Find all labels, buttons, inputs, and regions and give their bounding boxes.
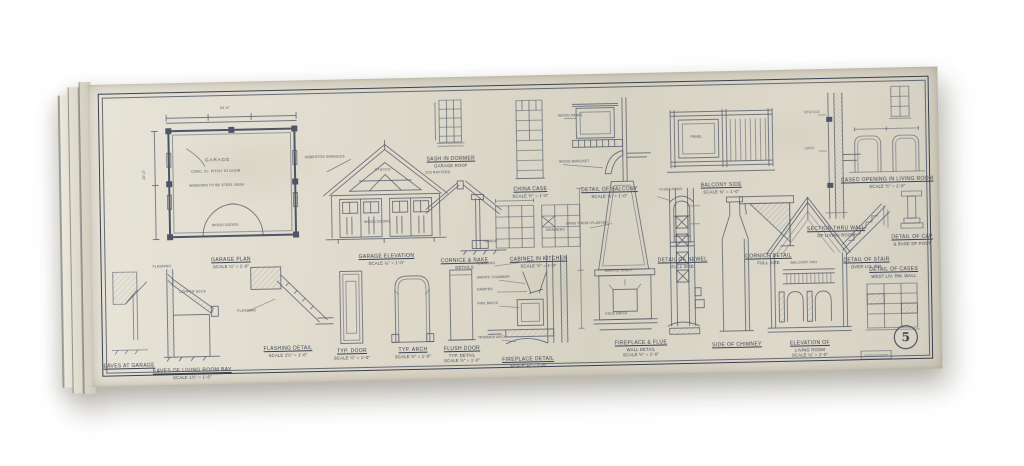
annotation-label: LATH bbox=[805, 147, 814, 151]
annotation-label: STUCCO bbox=[375, 168, 391, 172]
figure-caption: DETAIL OF CAP & BASE OF POST bbox=[891, 234, 933, 247]
cap-base-drawing bbox=[897, 187, 926, 234]
fireplace-flue-drawing bbox=[571, 176, 708, 341]
annotation-label: WOOD PANEL bbox=[558, 114, 583, 118]
annotation-label: MANTEL SHELF bbox=[605, 269, 633, 273]
typ-arch-drawing bbox=[387, 263, 438, 346]
china-case-drawing bbox=[510, 97, 549, 186]
annotation-label: DAMPER bbox=[477, 288, 493, 292]
annotation-label: COPPER DECK bbox=[179, 290, 206, 294]
figure-garage-plan: GARAGE CONC. FL. PITCH TO DOOR WINDOWS T… bbox=[146, 108, 313, 258]
figure-cased-opening: CASED OPENING IN LIVING ROOM SCALE ½" = … bbox=[844, 125, 929, 177]
figure-title: SASH IN DORMER bbox=[427, 156, 476, 164]
annotation-label: WOOD DOORS bbox=[212, 224, 239, 228]
figure-title: FIREPLACE & FLUE bbox=[615, 339, 667, 347]
annotation-label: FLASHING bbox=[237, 309, 256, 313]
figure-scale: SCALE ¾" = 1'-0" bbox=[502, 362, 554, 369]
balcony-side-drawing bbox=[664, 100, 777, 182]
figure-caption: TYP. DOOR SCALE ½" = 1'-0" bbox=[334, 348, 370, 361]
typ-door-drawing bbox=[335, 267, 368, 348]
figure-subtitle: WEST LIV. RM. WALL bbox=[869, 272, 918, 279]
figure-scale: SCALE ¼" = 1'-0" bbox=[790, 352, 830, 358]
annotation-label: 2x6 RAFTERS bbox=[425, 171, 450, 175]
blueprint-stack: GARAGE CONC. FL. PITCH TO DOOR WINDOWS T… bbox=[55, 60, 948, 397]
figure-typ-door: TYP. DOOR SCALE ½" = 1'-0" bbox=[335, 267, 368, 348]
figure-china-case: CHINA CASE SCALE ½" = 1'-0" bbox=[510, 97, 549, 186]
figure-chimney-side: SIDE OF CHIMNEY bbox=[711, 194, 759, 341]
figure-caption: FIREPLACE DETAIL SCALE ¾" = 1'-0" bbox=[502, 356, 554, 369]
figure-caption: DETAIL OF CASES WEST LIV. RM. WALL bbox=[869, 266, 918, 279]
figure-title: GARAGE ELEVATION bbox=[359, 253, 415, 261]
figure-flush-door: FLUSH DOOR TYP. DETAIL SCALE ½" = 1'-0" bbox=[445, 265, 478, 346]
figure-caption: FLUSH DOOR TYP. DETAIL SCALE ½" = 1'-0" bbox=[444, 346, 481, 364]
figure-caption: ELEVATION OF LIVING ROOM SCALE ¼" = 1'-0… bbox=[790, 340, 830, 358]
annotation-label: SMOKE CHAMBER bbox=[477, 276, 510, 281]
blueprint-sheet: GARAGE CONC. FL. PITCH TO DOOR WINDOWS T… bbox=[88, 66, 943, 387]
figure-flashing-detail: FLASHING FLASHING DETAIL SCALE 1½" = 1'-… bbox=[237, 260, 338, 346]
annotation-label: DRAWERS bbox=[546, 229, 565, 233]
annotation-label: STUCCO bbox=[804, 111, 820, 115]
figure-small-sash bbox=[888, 83, 915, 124]
figure-fireplace-flue: SAND FINISH PLASTER MANTEL SHELF FACE BR… bbox=[571, 176, 708, 341]
figure-caption: EAVES OF LIVING ROOM BAY SCALE 1½" = 1'-… bbox=[153, 367, 232, 381]
figure-caption: SASH IN DORMER GARAGE ROOF bbox=[427, 156, 476, 169]
eaves-section-drawing bbox=[154, 260, 228, 368]
title-box-decoration bbox=[860, 350, 892, 361]
sheet-number: 5 bbox=[902, 330, 911, 344]
figure-title: SIDE OF CHIMNEY bbox=[712, 341, 762, 349]
annotation-label: FIRE BRICK bbox=[477, 302, 498, 306]
figure-title: DETAIL OF STAIR bbox=[843, 257, 889, 265]
dormer-sash-drawing bbox=[432, 97, 469, 156]
figure-title: EAVES AT GARAGE bbox=[103, 363, 154, 371]
figure-title: FIREPLACE DETAIL bbox=[502, 356, 554, 364]
sheet-number-badge: 5 bbox=[894, 325, 918, 350]
annotation-label: GARAGE bbox=[205, 158, 230, 164]
figure-balcony-detail: WOOD PANEL WOOD BRACKET DETAIL OF BALCON… bbox=[558, 93, 660, 187]
figure-scale: SCALE ½" = 1'-0" bbox=[395, 353, 431, 359]
cased-opening-drawing bbox=[844, 125, 929, 177]
dimension-label: 20'-0" bbox=[143, 170, 147, 180]
figure-caption: TYP. ARCH SCALE ½" = 1'-0" bbox=[395, 347, 431, 360]
bookcases-drawing bbox=[865, 279, 924, 332]
annotation-label: FLASHING bbox=[153, 265, 172, 269]
flashing-detail-drawing bbox=[237, 260, 338, 346]
figure-typ-arch: TYP. ARCH SCALE ½" = 1'-0" bbox=[387, 263, 438, 346]
figure-balcony-side: PANEL BALCONY SIDE SCALE ¾" = 1'-0" bbox=[664, 100, 777, 182]
annotation-label: FLASHING bbox=[477, 262, 496, 266]
small-sash-drawing bbox=[888, 83, 915, 124]
figure-dormer-sash: SASH IN DORMER GARAGE ROOF bbox=[432, 97, 469, 156]
figure-cap-base: DETAIL OF CAP & BASE OF POST bbox=[897, 187, 926, 234]
garage-eaves-drawing bbox=[105, 262, 153, 363]
dimension-label: 24'-6" bbox=[220, 107, 230, 111]
figure-caption: SIDE OF CHIMNEY bbox=[712, 341, 762, 349]
annotation-label: WOOD DOORS bbox=[364, 220, 391, 224]
flush-door-drawing bbox=[445, 265, 478, 346]
figure-bookcases: DETAIL OF CASES WEST LIV. RM. WALL bbox=[865, 279, 924, 332]
figure-scale: SCALE ½" = 1'-0" bbox=[615, 351, 667, 358]
annotation-label: BALCONY RAIL bbox=[791, 261, 818, 265]
annotation-label: TRIMMER ARCH bbox=[478, 336, 507, 340]
figure-eaves-section: FLASHING COPPER DECK EAVES OF LIVING ROO… bbox=[154, 260, 228, 368]
photo-backdrop: GARAGE CONC. FL. PITCH TO DOOR WINDOWS T… bbox=[0, 0, 1024, 466]
annotation-label: FACE BRICK bbox=[605, 312, 627, 316]
figure-scale: SCALE ½" = 1'-0" bbox=[334, 354, 370, 360]
annotation-label: FLUE LINING bbox=[659, 188, 682, 192]
chimney-side-drawing bbox=[711, 194, 759, 341]
figure-fireplace-detail: FLASHING SMOKE CHAMBER DAMPER FIRE BRICK… bbox=[476, 248, 578, 356]
stair-detail-drawing bbox=[837, 193, 894, 256]
figure-stair-detail: DETAIL OF STAIR OVER LIV. RM. bbox=[837, 193, 894, 256]
figure-scale: SCALE ½" = 1'-0" bbox=[444, 357, 480, 363]
figure-scale: GARAGE ROOF bbox=[427, 162, 476, 169]
annotation-label: WOOD BRACKET bbox=[559, 160, 590, 165]
figure-scale: SCALE 1½" = 1'-0" bbox=[264, 352, 313, 359]
figure-caption: FIREPLACE & FLUE WALL DETAIL SCALE ½" = … bbox=[615, 339, 668, 358]
figure-subtitle: & BASE OF POST bbox=[891, 240, 933, 246]
annotation-label: PANEL bbox=[690, 136, 702, 140]
figure-caption: FLASHING DETAIL SCALE 1½" = 1'-0" bbox=[264, 345, 313, 358]
balcony-detail-drawing bbox=[558, 93, 660, 187]
figure-caption: EAVES AT GARAGE bbox=[103, 363, 154, 371]
figure-garage-eaves: EAVES AT GARAGE bbox=[105, 262, 153, 363]
